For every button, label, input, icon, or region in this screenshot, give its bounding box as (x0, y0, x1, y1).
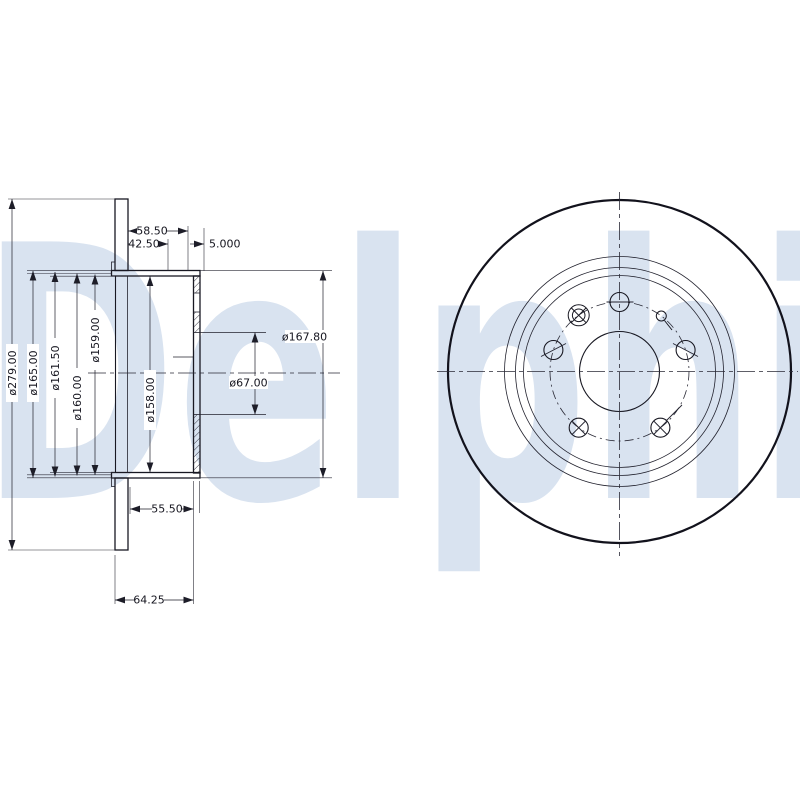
technical-drawing: Delphi (0, 0, 800, 800)
dim-label-67: ø67.00 (229, 377, 267, 390)
dim-label-55-5: 55.50 (151, 503, 183, 516)
dim-label-159: ø159.00 (89, 317, 102, 362)
brake-disc-drawing: Delphi (0, 0, 800, 800)
dim-label-5: 5.000 (209, 238, 241, 251)
dim-label-161-5: ø161.50 (49, 345, 62, 390)
dim-label-158: ø158.00 (144, 377, 157, 422)
delphi-watermark: Delphi (0, 172, 800, 582)
dim-label-165: ø165.00 (27, 350, 40, 395)
dim-label-160: ø160.00 (71, 375, 84, 420)
dim-label-58-5: 58.50 (136, 225, 168, 238)
dim-label-42-5: 42.50 (128, 238, 160, 251)
dim-label-167-8: ø167.80 (282, 331, 327, 344)
dim-label-64-25: 64.25 (133, 594, 165, 607)
dim-label-279: ø279.00 (6, 350, 19, 395)
